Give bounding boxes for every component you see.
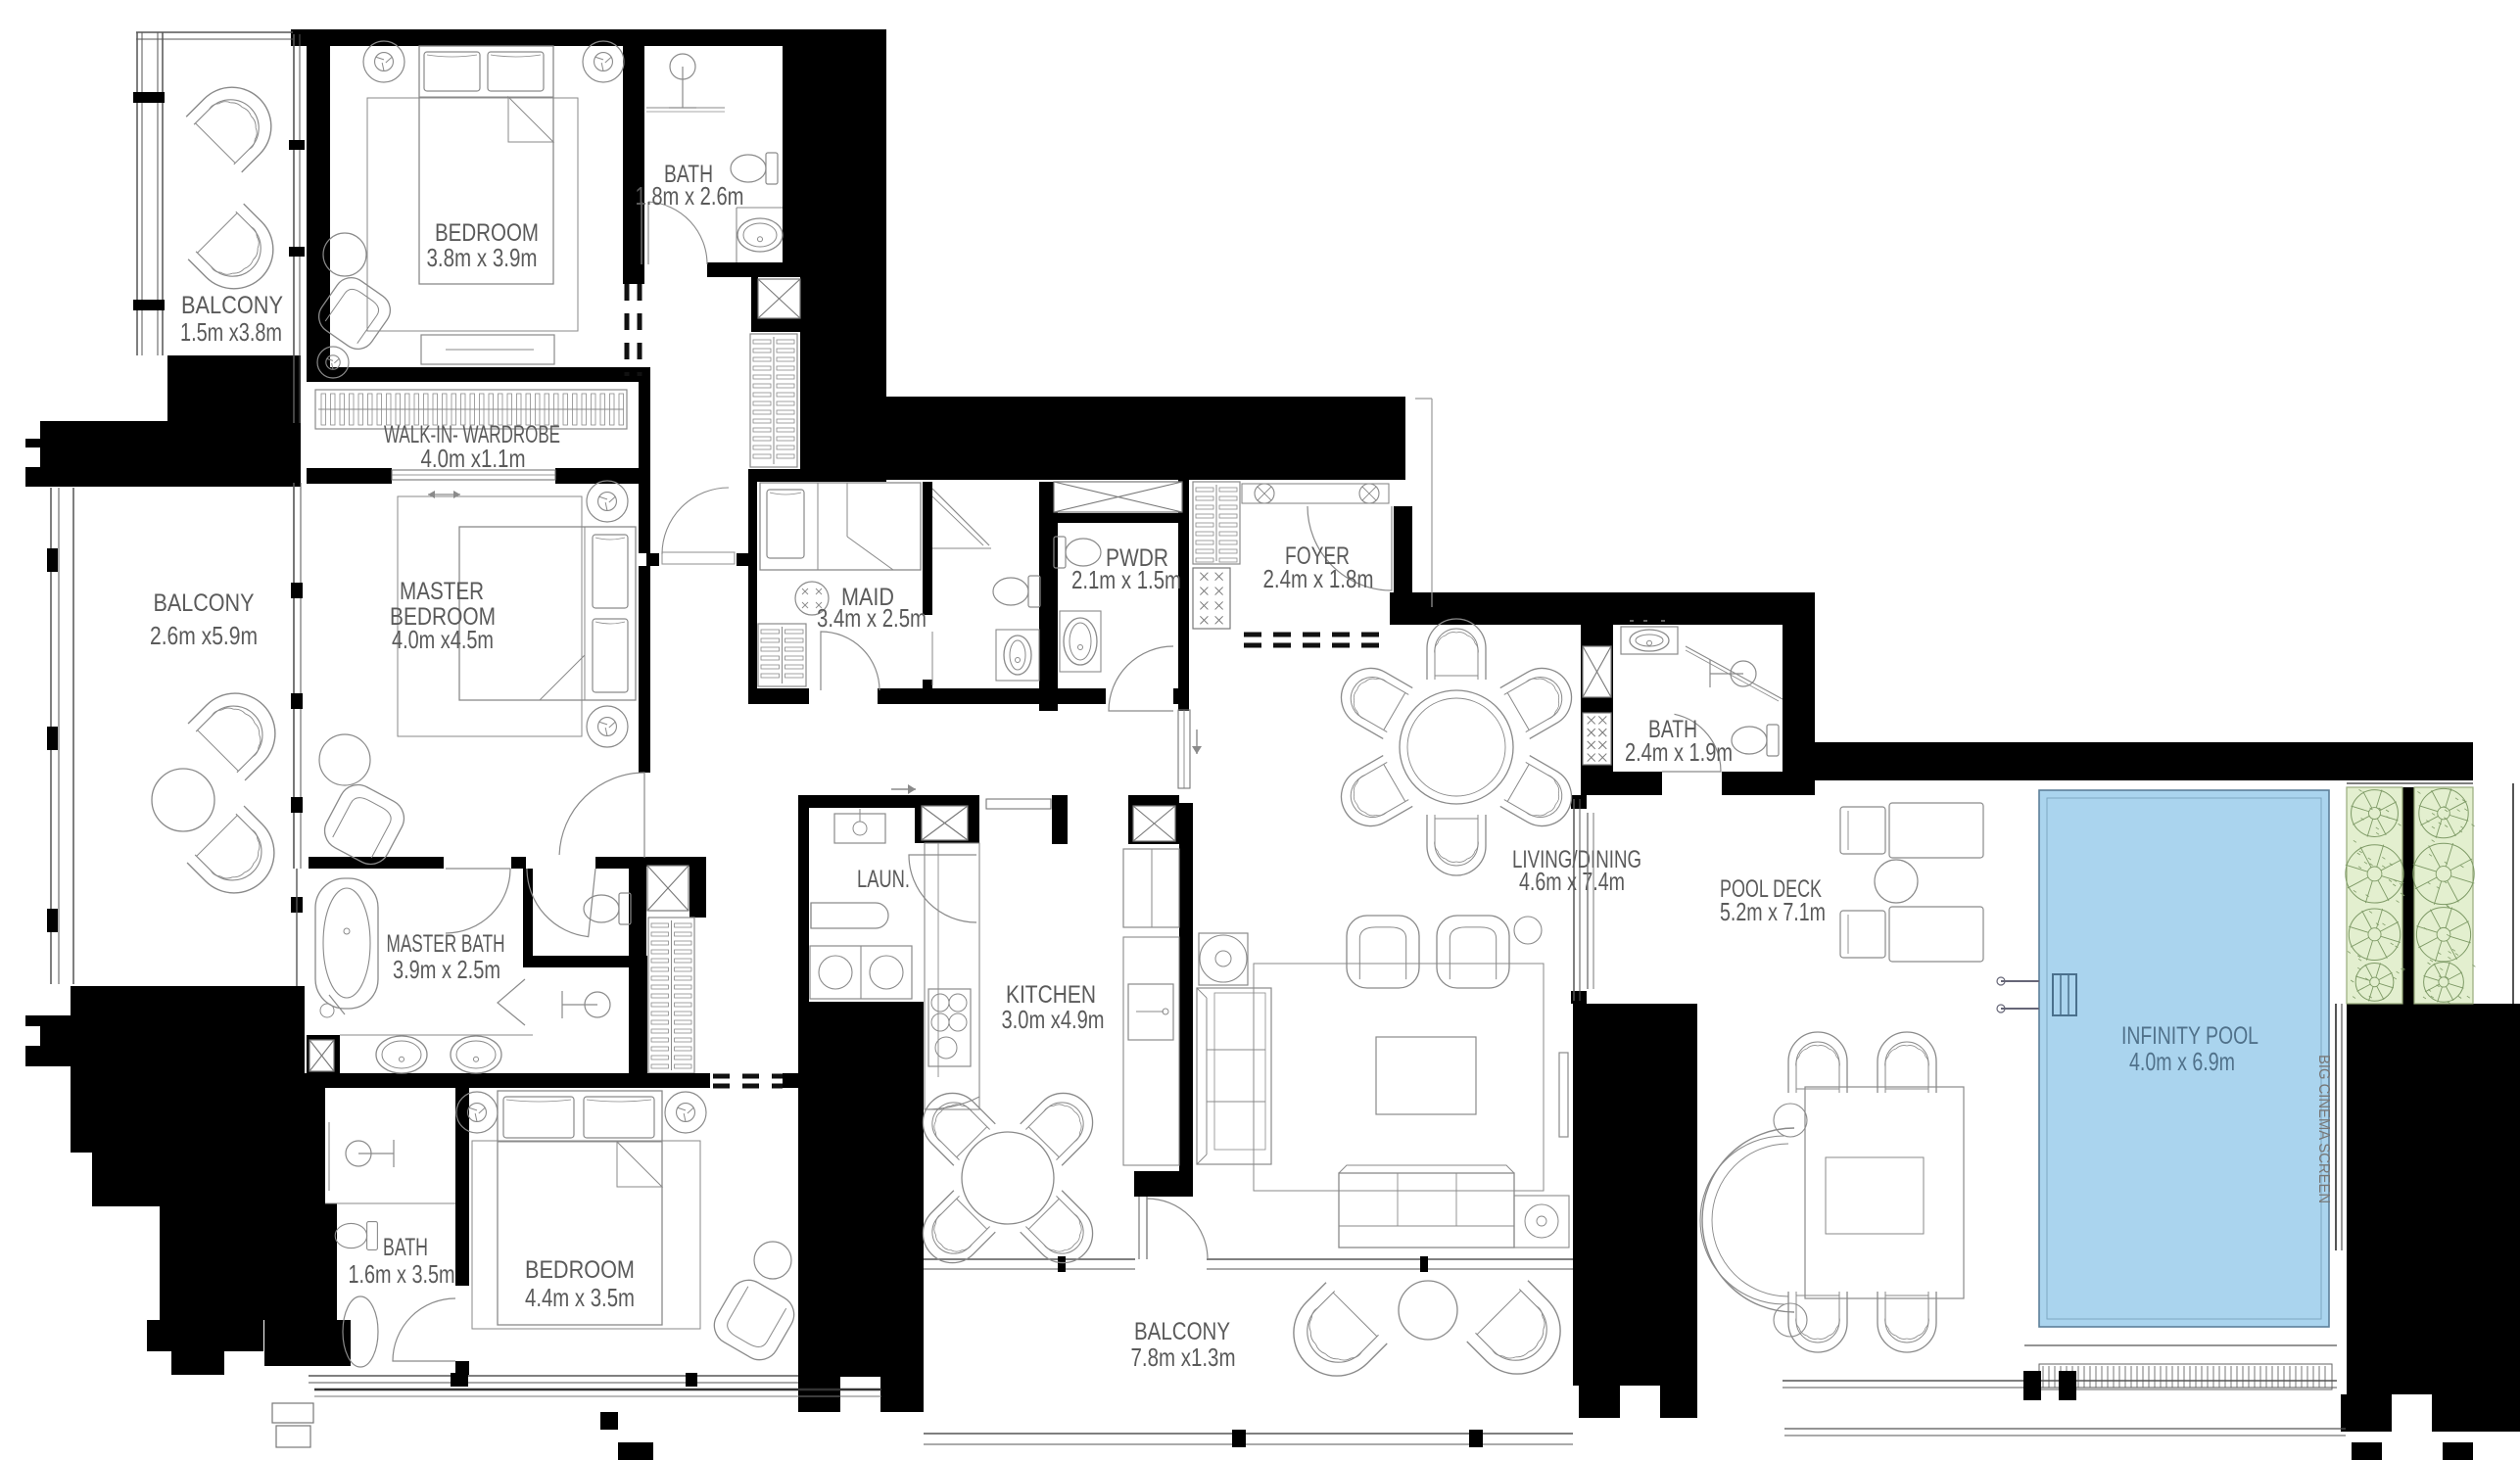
svg-text:2.6m x5.9m: 2.6m x5.9m <box>150 621 258 650</box>
svg-text:3.0m x4.9m: 3.0m x4.9m <box>1002 1005 1105 1034</box>
svg-text:3.4m x 2.5m: 3.4m x 2.5m <box>817 603 927 633</box>
svg-text:BALCONY: BALCONY <box>1134 1318 1230 1345</box>
svg-text:BATH: BATH <box>383 1234 428 1261</box>
svg-text:BALCONY: BALCONY <box>154 589 255 617</box>
svg-text:INFINITY POOL: INFINITY POOL <box>2121 1022 2258 1050</box>
svg-text:4.4m x 3.5m: 4.4m x 3.5m <box>525 1283 635 1312</box>
svg-text:LAUN.: LAUN. <box>857 866 910 893</box>
svg-text:BEDROOM: BEDROOM <box>525 1256 635 1284</box>
svg-text:2.1m x 1.5m: 2.1m x 1.5m <box>1071 565 1181 594</box>
svg-text:BIG CINEMA SCREEN: BIG CINEMA SCREEN <box>2315 1055 2332 1203</box>
svg-text:2.4m x 1.8m: 2.4m x 1.8m <box>1263 564 1374 593</box>
svg-text:3.8m x 3.9m: 3.8m x 3.9m <box>427 243 538 272</box>
svg-text:3.9m x 2.5m: 3.9m x 2.5m <box>393 955 500 984</box>
svg-text:1.5m x3.8m: 1.5m x3.8m <box>180 317 282 347</box>
svg-text:4.0m x4.5m: 4.0m x4.5m <box>392 625 494 654</box>
svg-text:MASTER: MASTER <box>400 578 484 605</box>
svg-text:7.8m x1.3m: 7.8m x1.3m <box>1131 1342 1236 1372</box>
svg-text:4.0m x1.1m: 4.0m x1.1m <box>421 444 526 473</box>
svg-text:MASTER BATH: MASTER BATH <box>387 930 505 958</box>
svg-text:4.0m x 6.9m: 4.0m x 6.9m <box>2129 1047 2235 1076</box>
svg-text:1.8m x 2.6m: 1.8m x 2.6m <box>636 181 744 211</box>
svg-text:2.4m x 1.9m: 2.4m x 1.9m <box>1625 737 1733 767</box>
svg-text:1.6m x 3.5m: 1.6m x 3.5m <box>349 1259 455 1289</box>
svg-text:BALCONY: BALCONY <box>181 292 283 319</box>
svg-text:5.2m x 7.1m: 5.2m x 7.1m <box>1720 897 1826 926</box>
svg-text:4.6m x 7.4m: 4.6m x 7.4m <box>1519 867 1625 896</box>
